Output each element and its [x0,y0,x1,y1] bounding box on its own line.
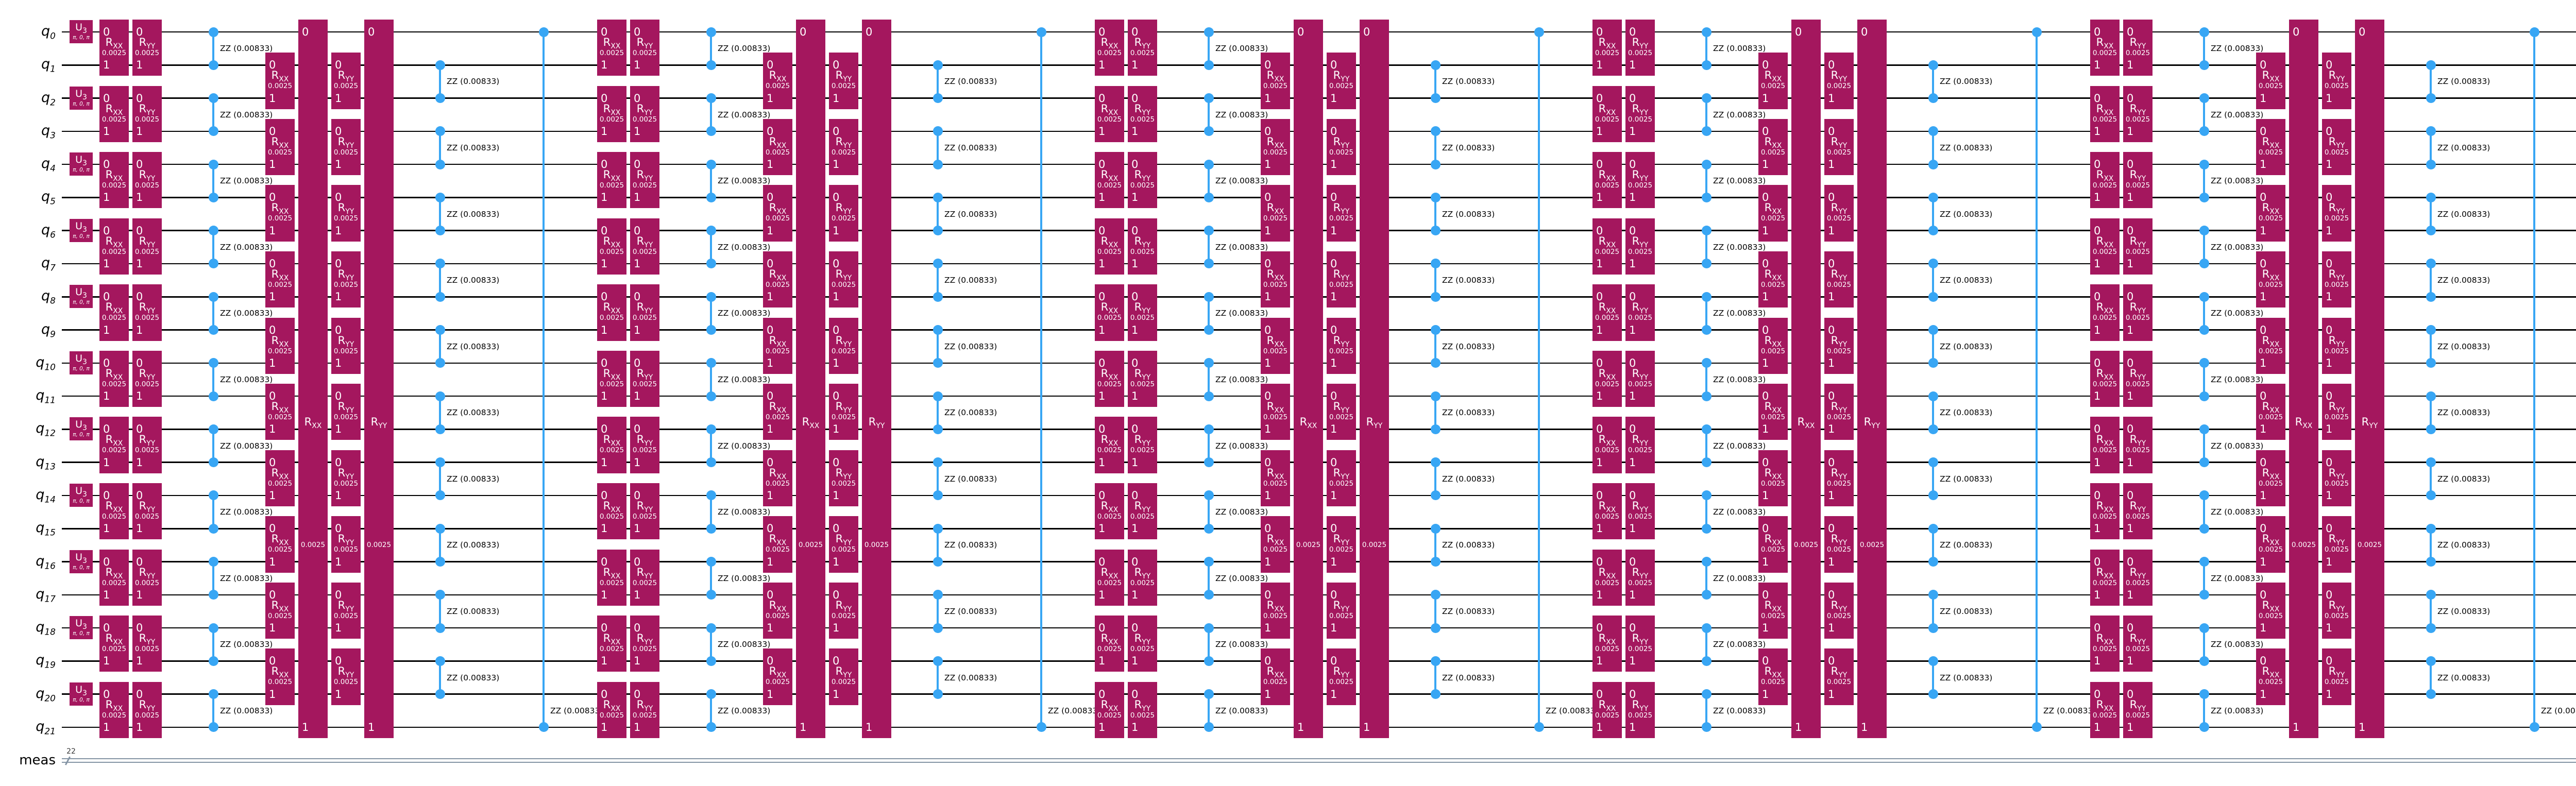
rzz-connector-dot [1928,93,1938,103]
gate-param-label: 0.0025 [1327,148,1356,157]
pair-port-1-label: 1 [1098,456,1105,469]
rxx-wrap-gate: 01RXX0.0025 [1294,20,1323,738]
rzz-connector-dot [1204,656,1214,666]
pair-port-1-label: 1 [2127,191,2133,203]
gate-param-label: 0.0025 [2090,512,2120,521]
rzz-connector-dot [2426,60,2436,70]
gate-param-label: 0.0025 [829,148,858,157]
rzz-connector-dot [1431,226,1440,235]
pair-port-1-label: 1 [2127,258,2133,270]
rxx-gate: 01RXX0.0025 [1592,616,1622,672]
rzz-connector-label: ZZ (0.00833) [1713,507,1766,517]
pair-port-0-label: 0 [800,26,806,38]
pair-port-1-label: 1 [335,489,342,502]
gate-param-label: 0.0025 [1625,446,1655,454]
pair-port-1-label: 1 [1264,489,1271,502]
ryy-gate: 01RYY0.0025 [2123,284,2153,340]
gate-param-label: 0.0025 [2322,612,2351,620]
ryy-gate: 01RYY0.0025 [1128,20,1157,76]
rxx-gate: 01RXX0.0025 [1261,251,1290,307]
pair-port-1-label: 1 [2094,191,2100,203]
ryy-gate: 01RYY0.0025 [1625,616,1655,672]
ryy-gate: 01RYY0.0025 [1128,483,1157,539]
ryy-gate: 01RYY0.0025 [1128,152,1157,208]
gate-param-label: 0.0025 [99,711,129,720]
rzz-connector-dot [1204,424,1214,434]
pair-port-1-label: 1 [136,258,143,270]
creg-label: meas [4,752,56,768]
rxx-gate: 01RXX0.0025 [1592,351,1622,407]
pair-port-1-label: 1 [833,556,839,568]
qubit-label: q7 [4,254,56,277]
rzz-connector-dot [435,193,445,202]
pair-port-1-label: 1 [767,688,773,700]
pair-port-0-label: 0 [866,26,872,38]
ryy-gate: 01RYY0.0025 [331,251,361,307]
rxx-gate: 01RXX0.0025 [597,417,626,473]
rzz-connector-dot [1702,557,1711,567]
ryy-gate: 01RYY0.0025 [630,86,659,142]
pair-port-1-label: 1 [601,125,607,138]
ryy-gate: 01RYY0.0025 [2123,152,2153,208]
rzz-connector-dot [435,126,445,136]
pair-port-1-label: 1 [1629,324,1636,336]
rzz-connector-dot [435,623,445,633]
gate-param-label: 0.0025 [1625,579,1655,587]
rzz-connector-dot [1431,292,1440,302]
pair-port-1-label: 1 [2127,125,2133,138]
pair-port-1-label: 1 [601,258,607,270]
rxx-gate: 01RXX0.0025 [99,86,129,142]
pair-port-1-label: 1 [1762,357,1769,369]
gate-param-label: 0.0025 [2123,711,2153,720]
rzz-connector-label: ZZ (0.00833) [2211,639,2263,650]
pair-port-1-label: 1 [2326,92,2332,105]
rzz-connector-dot [209,424,218,434]
ryy-gate: 01RYY0.0025 [2123,616,2153,672]
rzz-connector-dot [706,93,716,103]
pair-port-1-label: 1 [1264,92,1271,105]
rzz-connector-dot [435,325,445,335]
pair-port-1-label: 1 [1098,258,1105,270]
rzz-connector-dot [1928,490,1938,500]
rzz-connector-label: ZZ (0.00833) [944,209,997,219]
rzz-connector-label: ZZ (0.00833) [1215,573,1268,584]
ryy-gate: 01RYY0.0025 [1824,318,1854,374]
gate-param-label: 0.0025 [1824,612,1854,620]
rzz-wrap-connector-dot [2032,27,2042,37]
gate-param-label: 0.0025 [829,82,858,90]
pair-port-1-label: 1 [833,225,839,237]
pair-port-1-label: 1 [1828,688,1835,700]
rxx-gate: 01RXX0.0025 [1592,86,1622,142]
rxx-gate: 01RXX0.0025 [1758,648,1788,705]
rxx-gate: 01RXX0.0025 [597,550,626,606]
pair-port-1-label: 1 [1828,622,1835,634]
rzz-connector-label: ZZ (0.00833) [2437,673,2490,683]
pair-port-1-label: 1 [136,59,143,71]
gate-param-label: 0.0025 [1824,480,1854,488]
u3-gate: U3π, 0, π [70,550,93,573]
pair-port-1-label: 1 [1098,522,1105,535]
rxx-gate: 01RXX0.0025 [597,351,626,407]
pair-port-1-label: 1 [1330,158,1337,170]
gate-param-label: 0.0025 [1128,512,1157,521]
rzz-wrap-connector-line [2036,32,2038,727]
ryy-gate: 01RYY0.0025 [1327,251,1356,307]
rxx-gate: 01RXX0.0025 [763,53,792,109]
gate-param-label: 0.0025 [597,314,626,322]
rzz-connector-label: ZZ (0.00833) [220,706,273,716]
gate-param-label: 0.0025 [1592,115,1622,124]
rzz-connector-dot [1431,93,1440,103]
ryy-gate: 01RYY0.0025 [1625,86,1655,142]
gate-param-label: 0.0025 [2256,148,2285,157]
rzz-connector-dot [209,722,218,732]
ryy-gate: 01RYY0.0025 [132,417,162,473]
pair-port-1-label: 1 [601,191,607,203]
pair-port-1-label: 1 [103,324,110,336]
ryy-gate: 01RYY0.0025 [2123,86,2153,142]
gate-param-label: π, 0, π [70,33,93,42]
rzz-connector-label: ZZ (0.00833) [1215,176,1268,186]
rzz-connector-dot [1431,391,1440,401]
pair-port-1-label: 1 [634,125,640,138]
gate-param-label: 0.0025 [763,148,792,157]
rxx-gate: 01RXX0.0025 [1261,53,1290,109]
ryy-gate: 01RYY0.0025 [829,318,858,374]
gate-name-label: RYY [2355,415,2384,433]
pair-port-1-label: 1 [2127,456,2133,469]
gate-param-label: 0.0025 [1758,413,1788,421]
pair-port-1-label: 1 [2260,291,2266,303]
pair-port-1-label: 1 [1330,622,1337,634]
gate-param-label: 0.0025 [1095,314,1124,322]
rzz-wrap-connector-label: ZZ (0.00833) [1048,706,1100,716]
ryy-wrap-gate: 01RYY0.0025 [2355,20,2384,738]
gate-name-label: RXX [796,415,825,433]
rzz-connector-dot [435,60,445,70]
pair-port-1-label: 1 [136,522,143,535]
rzz-connector-label: ZZ (0.00833) [447,341,499,352]
rzz-connector-label: ZZ (0.00833) [718,242,770,252]
rxx-gate: 01RXX0.0025 [597,284,626,340]
ryy-gate: 01RYY0.0025 [1128,218,1157,275]
rxx-gate: 01RXX0.0025 [2256,185,2285,241]
gate-param-label: 0.0025 [1592,380,1622,388]
pair-port-1-label: 1 [634,456,640,469]
gate-param-label: 0.0025 [1758,480,1788,488]
rzz-connector-label: ZZ (0.00833) [718,374,770,385]
pair-port-1-label: 1 [1596,456,1603,469]
gate-param-label: 0.0025 [99,314,129,322]
pair-port-1-label: 1 [2127,522,2133,535]
pair-port-1-label: 1 [269,291,276,303]
gate-param-label: 0.0025 [829,612,858,620]
pair-port-1-label: 1 [1828,92,1835,105]
ryy-gate: 01RYY0.0025 [132,86,162,142]
rzz-connector-dot [2426,689,2436,699]
pair-port-1-label: 1 [634,721,640,733]
gate-param-label: 0.0025 [132,248,162,256]
gate-param-label: 0.0025 [630,645,659,653]
rzz-connector-dot [2199,358,2209,368]
rxx-gate: 01RXX0.0025 [763,251,792,307]
rzz-connector-dot [1928,457,1938,467]
rzz-connector-dot [2426,524,2436,534]
gate-param-label: 0.0025 [265,281,295,289]
ryy-gate: 01RYY0.0025 [132,550,162,606]
gate-param-label: 0.0025 [99,248,129,256]
gate-param-label: 0.0025 [763,82,792,90]
rxx-gate: 01RXX0.0025 [597,86,626,142]
gate-param-label: 0.0025 [2090,115,2120,124]
qubit-label: q1 [4,56,56,78]
qubit-label: q5 [4,188,56,210]
gate-param-label: 0.0025 [1758,281,1788,289]
gate-param-label: 0.0025 [1095,579,1124,587]
gate-param-label: 0.0025 [2256,82,2285,90]
rxx-gate: 01RXX0.0025 [99,483,129,539]
rxx-gate: 01RXX0.0025 [1592,20,1622,76]
rxx-gate: 01RXX0.0025 [763,119,792,175]
pair-port-1-label: 1 [833,688,839,700]
rzz-connector-dot [209,457,218,467]
rxx-gate: 01RXX0.0025 [1095,86,1124,142]
pair-port-1-label: 1 [833,92,839,105]
gate-param-label: 0.0025 [2322,545,2351,554]
gate-param-label: π, 0, π [70,696,93,704]
rzz-connector-dot [435,590,445,600]
pair-port-1-label: 1 [1629,456,1636,469]
pair-port-1-label: 1 [2260,92,2266,105]
rzz-connector-dot [1702,27,1711,37]
ryy-gate: 01RYY0.0025 [1824,516,1854,572]
gate-param-label: 0.0025 [763,413,792,421]
rzz-connector-dot [1431,126,1440,136]
pair-port-1-label: 1 [1330,423,1337,435]
rzz-connector-label: ZZ (0.00833) [718,43,770,54]
rzz-connector-dot [1928,226,1938,235]
ryy-gate: 01RYY0.0025 [1824,119,1854,175]
ryy-gate: 01RYY0.0025 [1128,86,1157,142]
gate-param-label: 0.0025 [99,49,129,57]
rzz-connector-label: ZZ (0.00833) [1713,308,1766,318]
ryy-gate: 01RYY0.0025 [1128,616,1157,672]
ryy-gate: 01RYY0.0025 [2322,384,2351,440]
gate-param-label: 0.0025 [829,678,858,686]
rxx-gate: 01RXX0.0025 [1758,318,1788,374]
rzz-connector-dot [209,193,218,202]
rzz-connector-dot [933,457,943,467]
gate-param-label: 0.0025 [1824,214,1854,223]
gate-param-label: 0.0025 [1261,678,1290,686]
ryy-gate: 01RYY0.0025 [1327,516,1356,572]
rzz-connector-dot [209,557,218,567]
rzz-connector-dot [435,656,445,666]
rxx-gate: 01RXX0.0025 [1261,318,1290,374]
gate-param-label: 0.0025 [2123,49,2153,57]
rzz-connector-dot [1204,259,1214,268]
rxx-gate: 01RXX0.0025 [265,648,295,705]
rzz-connector-dot [209,656,218,666]
pair-port-1-label: 1 [2127,655,2133,667]
rxx-wrap-gate: 01RXX0.0025 [298,20,328,738]
pair-port-1-label: 1 [2094,324,2100,336]
rzz-connector-dot [933,325,943,335]
gate-param-label: 0.0025 [2090,314,2120,322]
gate-param-label: 0.0025 [1824,82,1854,90]
rxx-gate: 01RXX0.0025 [2090,20,2120,76]
gate-param-label: 0.0025 [1261,281,1290,289]
rzz-connector-dot [1928,325,1938,335]
pair-port-1-label: 1 [601,589,607,601]
gate-param-label: 0.0025 [597,711,626,720]
ryy-gate: 01RYY0.0025 [1128,351,1157,407]
rzz-connector-dot [435,490,445,500]
rxx-gate: 01RXX0.0025 [99,218,129,275]
rxx-gate: 01RXX0.0025 [1592,550,1622,606]
rzz-connector-dot [2426,259,2436,268]
qubit-label: q12 [4,420,56,442]
rxx-gate: 01RXX0.0025 [99,284,129,340]
pair-port-1-label: 1 [1363,721,1370,733]
rzz-connector-label: ZZ (0.00833) [718,308,770,318]
rxx-gate: 01RXX0.0025 [2256,53,2285,109]
gate-param-label: 0.0025 [2090,446,2120,454]
pair-port-1-label: 1 [1131,721,1138,733]
pair-port-1-label: 1 [1131,324,1138,336]
ryy-gate: 01RYY0.0025 [331,318,361,374]
rzz-connector-dot [1204,391,1214,401]
pair-port-1-label: 1 [136,456,143,469]
gate-param-label: 0.0025 [132,115,162,124]
rxx-gate: 01RXX0.0025 [1095,284,1124,340]
gate-param-label: 0.0025 [1592,579,1622,587]
rzz-connector-label: ZZ (0.00833) [220,639,273,650]
rxx-gate: 01RXX0.0025 [2090,550,2120,606]
pair-port-1-label: 1 [1131,589,1138,601]
gate-param-label: 0.0025 [2090,181,2120,190]
rzz-connector-dot [1204,27,1214,37]
ryy-gate: 01RYY0.0025 [829,516,858,572]
pair-port-1-label: 1 [335,423,342,435]
rxx-gate: 01RXX0.0025 [99,417,129,473]
gate-param-label: 0.0025 [265,480,295,488]
pair-port-1-label: 1 [335,291,342,303]
ryy-gate: 01RYY0.0025 [2322,516,2351,572]
ryy-gate: 01RYY0.0025 [630,218,659,275]
rzz-connector-dot [1702,160,1711,169]
gate-param-label: 0.0025 [132,314,162,322]
rxx-gate: 01RXX0.0025 [265,185,295,241]
rzz-connector-dot [2199,325,2209,335]
rzz-connector-dot [1928,391,1938,401]
pair-port-1-label: 1 [1264,357,1271,369]
ryy-wrap-gate: 01RYY0.0025 [1360,20,1389,738]
rzz-connector-dot [2426,457,2436,467]
rzz-connector-dot [435,557,445,567]
gate-param-label: 0.0025 [1857,541,1887,549]
pair-port-1-label: 1 [767,225,773,237]
rzz-connector-dot [706,490,716,500]
rzz-connector-label: ZZ (0.00833) [1215,639,1268,650]
rzz-connector-dot [1431,325,1440,335]
rzz-connector-dot [933,590,943,600]
rzz-connector-label: ZZ (0.00833) [2211,706,2263,716]
rzz-connector-dot [1928,193,1938,202]
rxx-gate: 01RXX0.0025 [2256,583,2285,639]
rzz-connector-label: ZZ (0.00833) [944,606,997,617]
pair-port-1-label: 1 [103,655,110,667]
pair-port-1-label: 1 [1596,721,1603,733]
rzz-wrap-connector-dot [1534,27,1544,37]
rzz-connector-dot [706,557,716,567]
rzz-connector-dot [1204,457,1214,467]
rxx-gate: 01RXX0.0025 [597,616,626,672]
pair-port-1-label: 1 [1629,522,1636,535]
pair-port-1-label: 1 [1330,688,1337,700]
pair-port-1-label: 1 [2094,390,2100,402]
pair-port-1-label: 1 [136,125,143,138]
creg-size-label: 22 [61,747,81,756]
rzz-connector-dot [933,226,943,235]
rzz-connector-label: ZZ (0.00833) [2211,176,2263,186]
ryy-gate: 01RYY0.0025 [630,483,659,539]
rzz-connector-label: ZZ (0.00833) [1215,242,1268,252]
gate-param-label: 0.0025 [99,512,129,521]
gate-param-label: 0.0025 [1327,612,1356,620]
gate-param-label: 0.0025 [2256,545,2285,554]
gate-param-label: 0.0025 [132,446,162,454]
ryy-gate: 01RYY0.0025 [331,185,361,241]
pair-port-1-label: 1 [1828,291,1835,303]
qubit-label: q2 [4,89,56,111]
rxx-gate: 01RXX0.0025 [1261,450,1290,506]
gate-param-label: 0.0025 [829,480,858,488]
rzz-connector-label: ZZ (0.00833) [944,407,997,418]
pair-port-1-label: 1 [1098,390,1105,402]
rzz-connector-label: ZZ (0.00833) [220,242,273,252]
gate-param-label: 0.0025 [2322,347,2351,355]
rzz-connector-label: ZZ (0.00833) [2437,407,2490,418]
gate-param-label: 0.0025 [99,181,129,190]
pair-port-1-label: 1 [1828,423,1835,435]
pair-port-1-label: 1 [833,357,839,369]
ryy-gate: 01RYY0.0025 [331,516,361,572]
pair-port-1-label: 1 [335,622,342,634]
rzz-connector-dot [1431,590,1440,600]
gate-param-label: 0.0025 [597,380,626,388]
gate-param-label: 0.0025 [331,413,361,421]
gate-param-label: 0.0025 [1758,148,1788,157]
rzz-connector-label: ZZ (0.00833) [944,76,997,87]
pair-port-1-label: 1 [1596,125,1603,138]
gate-param-label: 0.0025 [2256,281,2285,289]
gate-param-label: π, 0, π [70,365,93,373]
gate-param-label: 0.0025 [630,314,659,322]
rxx-gate: 01RXX0.0025 [597,20,626,76]
gate-param-label: 0.0025 [1261,480,1290,488]
rxx-gate: 01RXX0.0025 [2090,284,2120,340]
rzz-connector-dot [435,391,445,401]
rzz-connector-dot [1204,590,1214,600]
rxx-gate: 01RXX0.0025 [2090,218,2120,275]
gate-param-label: 0.0025 [1327,347,1356,355]
rzz-connector-label: ZZ (0.00833) [1713,43,1766,54]
pair-port-0-label: 0 [1795,26,1802,38]
rzz-connector-dot [1928,60,1938,70]
